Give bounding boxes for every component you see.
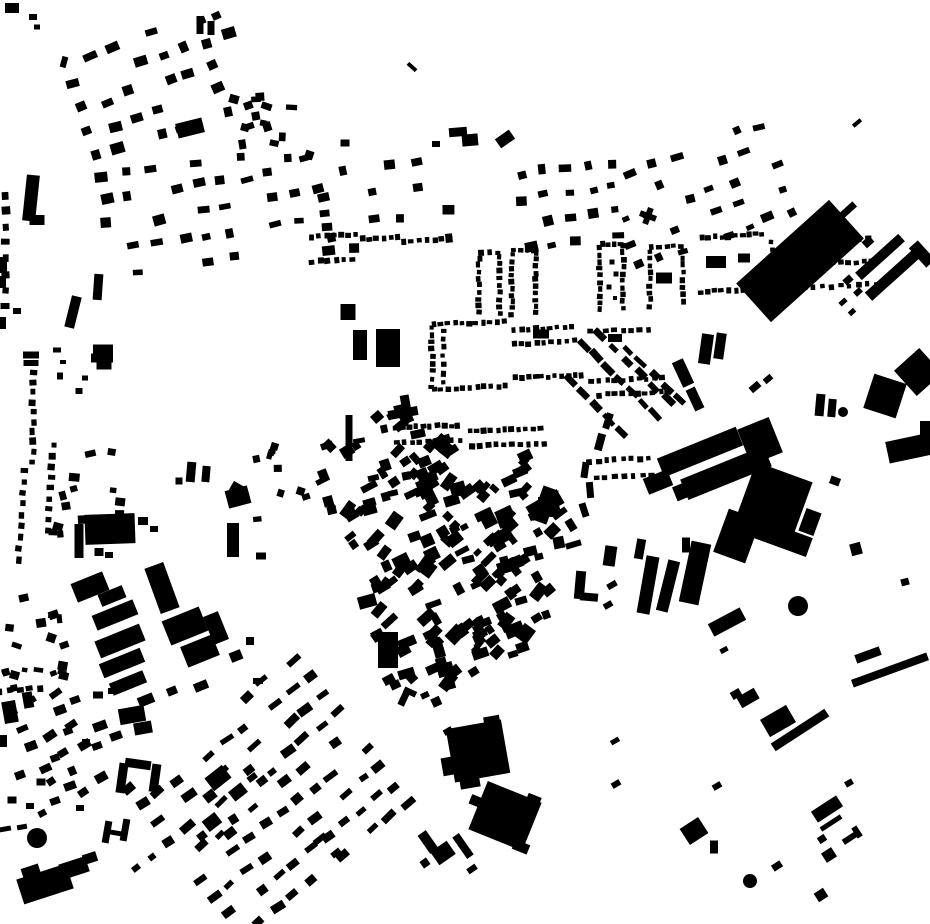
building bbox=[419, 533, 435, 549]
figure-ground-map bbox=[0, 0, 930, 924]
building bbox=[240, 175, 253, 184]
building bbox=[441, 344, 446, 350]
building bbox=[604, 457, 608, 463]
building bbox=[322, 223, 333, 232]
building bbox=[52, 443, 57, 448]
building bbox=[359, 773, 370, 783]
building bbox=[633, 355, 647, 368]
building bbox=[612, 474, 619, 479]
building bbox=[330, 704, 344, 718]
building bbox=[453, 320, 458, 326]
building bbox=[649, 244, 654, 250]
building bbox=[760, 210, 775, 223]
building bbox=[605, 377, 610, 382]
building bbox=[478, 250, 484, 256]
building bbox=[801, 285, 808, 290]
building bbox=[680, 285, 686, 290]
building bbox=[497, 283, 502, 288]
building bbox=[23, 352, 39, 359]
building bbox=[817, 834, 828, 844]
building bbox=[419, 857, 430, 868]
building bbox=[546, 326, 552, 331]
building bbox=[477, 443, 483, 449]
building bbox=[753, 287, 759, 292]
building bbox=[477, 270, 481, 275]
building bbox=[708, 607, 746, 636]
building bbox=[578, 372, 583, 379]
building bbox=[118, 705, 146, 725]
building bbox=[865, 236, 871, 241]
building bbox=[269, 139, 279, 147]
building bbox=[698, 290, 704, 295]
round-building bbox=[743, 874, 757, 888]
building bbox=[221, 905, 236, 919]
building bbox=[671, 243, 676, 248]
building bbox=[9, 670, 20, 681]
building bbox=[526, 374, 532, 380]
building bbox=[285, 888, 299, 901]
building bbox=[588, 379, 594, 384]
building bbox=[442, 511, 454, 523]
building bbox=[388, 489, 399, 497]
building bbox=[825, 239, 831, 244]
building bbox=[24, 740, 38, 753]
building bbox=[22, 667, 28, 672]
building bbox=[519, 341, 524, 346]
building bbox=[572, 337, 577, 342]
building bbox=[286, 653, 301, 668]
building bbox=[672, 358, 694, 388]
building bbox=[341, 257, 345, 262]
building bbox=[387, 782, 400, 795]
building bbox=[30, 215, 45, 225]
building bbox=[18, 533, 24, 540]
building bbox=[501, 318, 507, 324]
building bbox=[828, 284, 834, 290]
building bbox=[845, 260, 851, 265]
building bbox=[304, 874, 317, 887]
building bbox=[440, 353, 444, 357]
building bbox=[430, 325, 434, 329]
building bbox=[530, 612, 543, 624]
building bbox=[251, 111, 260, 121]
building bbox=[81, 125, 93, 136]
building bbox=[519, 375, 525, 381]
building bbox=[603, 328, 609, 333]
building bbox=[759, 232, 764, 237]
building bbox=[25, 685, 33, 691]
building bbox=[698, 333, 714, 364]
building bbox=[621, 473, 627, 479]
building bbox=[835, 238, 839, 243]
building bbox=[441, 380, 445, 384]
building bbox=[511, 248, 516, 252]
building bbox=[681, 261, 685, 267]
building bbox=[920, 421, 930, 439]
building bbox=[60, 56, 69, 68]
building bbox=[646, 158, 657, 168]
building bbox=[579, 502, 590, 517]
building bbox=[621, 328, 626, 333]
building bbox=[589, 348, 604, 364]
building bbox=[3, 224, 9, 231]
building bbox=[276, 489, 284, 498]
building bbox=[284, 154, 292, 163]
building bbox=[384, 159, 396, 169]
building bbox=[413, 183, 424, 192]
building bbox=[76, 805, 84, 811]
building bbox=[476, 309, 482, 314]
building bbox=[533, 310, 538, 315]
building bbox=[48, 529, 57, 536]
building bbox=[473, 548, 482, 557]
building bbox=[610, 737, 620, 746]
building bbox=[467, 666, 479, 678]
building bbox=[732, 199, 744, 208]
building bbox=[487, 428, 492, 433]
building bbox=[0, 735, 7, 747]
building bbox=[402, 439, 407, 445]
building bbox=[94, 770, 109, 784]
building bbox=[122, 191, 131, 202]
building bbox=[17, 824, 28, 831]
building bbox=[646, 304, 652, 309]
building bbox=[820, 284, 825, 289]
building bbox=[21, 468, 29, 473]
building bbox=[16, 556, 22, 564]
building bbox=[194, 838, 208, 852]
building bbox=[442, 423, 448, 429]
building bbox=[541, 441, 547, 447]
building bbox=[619, 391, 625, 397]
building bbox=[58, 671, 69, 681]
building bbox=[510, 286, 514, 292]
building bbox=[734, 288, 739, 294]
building bbox=[91, 354, 113, 363]
building bbox=[526, 441, 530, 447]
building bbox=[420, 423, 426, 428]
building bbox=[389, 235, 394, 240]
building bbox=[622, 215, 630, 223]
building bbox=[749, 381, 762, 393]
building bbox=[640, 473, 646, 478]
building bbox=[14, 770, 26, 781]
building bbox=[514, 596, 527, 606]
building bbox=[805, 262, 811, 268]
building bbox=[533, 325, 540, 331]
building bbox=[597, 300, 602, 305]
building bbox=[523, 427, 528, 432]
building bbox=[75, 100, 88, 112]
building bbox=[621, 257, 627, 263]
building bbox=[452, 582, 465, 596]
building bbox=[753, 231, 759, 235]
building bbox=[15, 545, 22, 552]
building bbox=[468, 428, 473, 433]
building bbox=[647, 256, 652, 261]
building bbox=[614, 272, 619, 277]
building bbox=[416, 440, 422, 445]
building bbox=[286, 858, 300, 871]
building bbox=[541, 340, 546, 346]
building bbox=[577, 338, 592, 353]
building bbox=[8, 797, 17, 804]
building bbox=[295, 761, 310, 776]
building bbox=[798, 508, 821, 536]
building bbox=[251, 96, 261, 102]
building bbox=[120, 819, 131, 842]
round-building bbox=[27, 828, 47, 848]
building bbox=[526, 327, 531, 333]
building bbox=[557, 339, 561, 345]
building bbox=[508, 279, 514, 285]
building bbox=[303, 669, 318, 683]
building bbox=[844, 778, 854, 787]
building bbox=[680, 291, 686, 297]
building bbox=[565, 339, 569, 344]
building bbox=[487, 320, 493, 324]
building bbox=[242, 832, 256, 844]
building bbox=[746, 223, 755, 231]
building bbox=[11, 642, 22, 650]
building bbox=[312, 183, 325, 194]
building bbox=[496, 304, 502, 309]
building bbox=[385, 511, 404, 531]
building bbox=[319, 210, 329, 218]
building bbox=[605, 391, 610, 396]
building bbox=[533, 527, 544, 538]
building bbox=[370, 759, 385, 774]
building bbox=[746, 231, 751, 237]
building bbox=[647, 291, 653, 296]
building bbox=[475, 302, 481, 308]
building bbox=[190, 159, 202, 167]
building bbox=[533, 283, 539, 289]
building bbox=[307, 811, 323, 826]
building bbox=[814, 261, 818, 266]
building bbox=[771, 260, 776, 266]
building bbox=[2, 192, 9, 200]
building bbox=[529, 582, 549, 603]
building bbox=[34, 25, 40, 30]
building bbox=[598, 286, 602, 292]
building bbox=[460, 523, 469, 532]
building bbox=[152, 213, 166, 226]
building bbox=[370, 410, 384, 424]
building bbox=[814, 888, 829, 902]
building bbox=[713, 233, 717, 239]
building bbox=[220, 733, 235, 745]
building bbox=[597, 294, 603, 300]
building bbox=[270, 900, 286, 915]
building bbox=[648, 407, 662, 422]
building bbox=[646, 456, 651, 461]
building bbox=[286, 682, 301, 695]
building bbox=[133, 55, 148, 68]
building bbox=[468, 385, 472, 391]
building bbox=[229, 252, 239, 261]
building bbox=[150, 238, 163, 246]
building bbox=[513, 374, 518, 380]
building bbox=[100, 217, 111, 228]
building bbox=[345, 233, 351, 238]
building bbox=[395, 234, 401, 241]
building bbox=[597, 259, 602, 265]
building bbox=[247, 739, 262, 753]
building bbox=[323, 769, 339, 783]
building bbox=[458, 438, 462, 443]
building bbox=[602, 475, 607, 480]
building bbox=[438, 236, 444, 242]
map-canvas bbox=[0, 0, 930, 924]
building bbox=[229, 649, 244, 663]
building bbox=[474, 429, 480, 433]
building bbox=[454, 387, 459, 392]
building bbox=[227, 523, 239, 557]
building bbox=[309, 782, 322, 794]
building bbox=[622, 345, 633, 356]
building bbox=[762, 286, 768, 290]
building bbox=[587, 208, 599, 219]
building bbox=[48, 475, 55, 480]
building bbox=[611, 327, 617, 332]
building bbox=[401, 471, 411, 481]
building bbox=[408, 239, 414, 243]
building bbox=[207, 889, 223, 903]
building bbox=[496, 268, 502, 274]
building bbox=[460, 321, 465, 325]
building bbox=[475, 297, 481, 302]
building bbox=[661, 392, 676, 407]
building bbox=[686, 386, 705, 411]
building bbox=[410, 440, 415, 445]
building bbox=[49, 796, 61, 806]
building bbox=[130, 112, 144, 124]
building bbox=[712, 781, 723, 791]
building bbox=[338, 816, 351, 828]
building bbox=[260, 101, 272, 111]
building bbox=[100, 192, 114, 205]
building bbox=[64, 295, 81, 328]
building bbox=[508, 312, 514, 317]
building bbox=[248, 803, 259, 813]
building bbox=[406, 424, 412, 429]
building bbox=[430, 377, 434, 382]
building bbox=[228, 94, 240, 105]
building bbox=[2, 287, 9, 294]
building bbox=[611, 779, 622, 789]
building bbox=[93, 692, 103, 699]
building bbox=[738, 254, 750, 263]
building bbox=[678, 244, 684, 249]
building bbox=[608, 160, 616, 169]
building bbox=[396, 214, 404, 222]
building bbox=[109, 141, 125, 156]
building bbox=[477, 282, 482, 287]
building bbox=[559, 374, 564, 379]
building bbox=[349, 257, 355, 262]
building bbox=[290, 792, 304, 806]
building bbox=[787, 207, 798, 218]
building bbox=[341, 304, 356, 320]
building bbox=[304, 841, 318, 854]
building bbox=[152, 104, 164, 114]
building bbox=[509, 441, 515, 447]
building bbox=[186, 462, 197, 483]
building bbox=[628, 456, 633, 461]
building bbox=[349, 243, 359, 253]
building bbox=[107, 448, 116, 456]
building bbox=[3, 254, 9, 262]
building bbox=[518, 248, 523, 253]
building bbox=[620, 292, 626, 298]
building bbox=[497, 384, 502, 389]
building bbox=[63, 780, 77, 792]
building bbox=[317, 192, 330, 203]
building bbox=[811, 285, 816, 291]
building bbox=[820, 240, 825, 245]
building bbox=[425, 237, 430, 243]
building bbox=[732, 125, 742, 135]
building bbox=[438, 387, 443, 391]
building bbox=[1, 303, 10, 309]
building bbox=[161, 835, 175, 848]
building bbox=[763, 374, 774, 384]
building bbox=[202, 750, 215, 762]
building bbox=[737, 147, 751, 157]
building bbox=[0, 689, 2, 696]
building bbox=[110, 487, 117, 493]
building bbox=[179, 818, 196, 835]
building bbox=[682, 538, 690, 553]
building bbox=[656, 559, 680, 612]
building bbox=[796, 239, 801, 244]
building bbox=[316, 720, 329, 731]
building bbox=[769, 240, 774, 245]
building bbox=[53, 704, 67, 717]
building bbox=[180, 232, 193, 243]
building bbox=[681, 299, 686, 305]
building bbox=[321, 830, 336, 844]
building bbox=[815, 394, 826, 417]
building bbox=[612, 241, 616, 247]
building bbox=[606, 242, 611, 247]
building bbox=[223, 106, 233, 117]
building bbox=[481, 383, 486, 389]
building bbox=[548, 339, 554, 344]
building bbox=[133, 269, 143, 275]
building bbox=[441, 756, 460, 777]
building bbox=[685, 194, 696, 204]
building bbox=[286, 104, 297, 110]
building bbox=[49, 453, 56, 460]
building bbox=[842, 274, 853, 285]
building bbox=[92, 599, 139, 630]
building bbox=[61, 501, 71, 510]
building bbox=[552, 373, 556, 378]
building bbox=[94, 523, 103, 533]
building bbox=[503, 383, 508, 389]
building bbox=[430, 368, 436, 373]
building bbox=[646, 327, 651, 333]
building bbox=[706, 256, 726, 268]
building bbox=[596, 393, 602, 399]
building bbox=[31, 419, 37, 426]
building bbox=[853, 260, 859, 265]
building bbox=[259, 816, 273, 829]
building bbox=[223, 879, 234, 890]
building bbox=[600, 241, 605, 247]
